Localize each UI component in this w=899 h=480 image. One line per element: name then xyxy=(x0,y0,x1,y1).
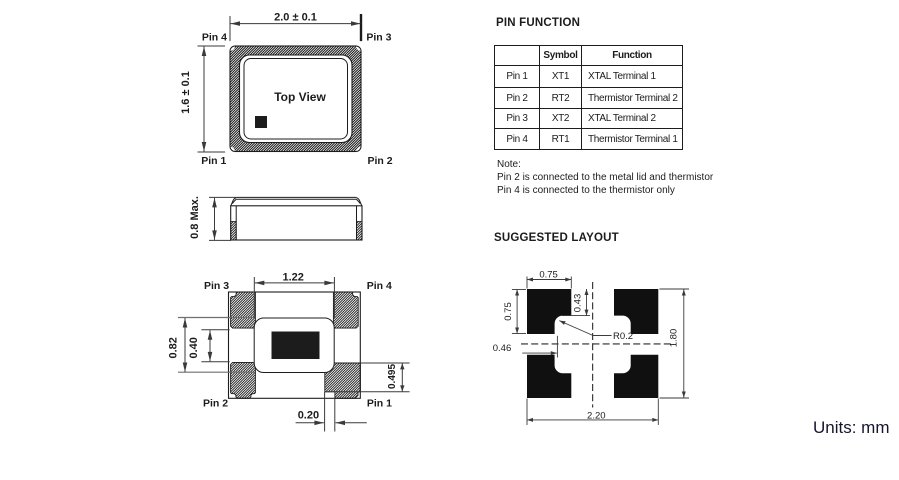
svg-text:1.6 ± 0.1: 1.6 ± 0.1 xyxy=(180,71,192,114)
svg-text:0.8 Max.: 0.8 Max. xyxy=(189,196,201,239)
svg-text:Pin 3: Pin 3 xyxy=(366,31,391,43)
svg-text:R0.2: R0.2 xyxy=(613,331,633,342)
svg-text:0.75: 0.75 xyxy=(503,302,514,321)
svg-text:1.22: 1.22 xyxy=(282,271,303,283)
svg-text:2.0 ± 0.1: 2.0 ± 0.1 xyxy=(274,11,317,23)
svg-text:0.40: 0.40 xyxy=(188,337,200,358)
svg-text:Pin 4: Pin 4 xyxy=(367,280,392,292)
svg-text:0.20: 0.20 xyxy=(298,409,319,421)
svg-text:0.46: 0.46 xyxy=(493,343,512,354)
svg-text:0.75: 0.75 xyxy=(539,269,558,280)
svg-text:Top View: Top View xyxy=(274,90,326,104)
svg-text:Pin 2: Pin 2 xyxy=(203,397,228,409)
svg-text:0.43: 0.43 xyxy=(573,294,584,313)
svg-text:1.80: 1.80 xyxy=(668,329,679,348)
svg-text:2.20: 2.20 xyxy=(587,410,606,421)
svg-text:0.495: 0.495 xyxy=(387,364,398,389)
svg-text:Pin 3: Pin 3 xyxy=(204,280,229,292)
svg-text:Pin 2: Pin 2 xyxy=(368,155,393,167)
svg-text:Pin 4: Pin 4 xyxy=(202,31,227,43)
svg-text:0.82: 0.82 xyxy=(167,337,179,358)
svg-text:Pin 1: Pin 1 xyxy=(367,397,392,409)
svg-text:Pin 1: Pin 1 xyxy=(201,155,226,167)
